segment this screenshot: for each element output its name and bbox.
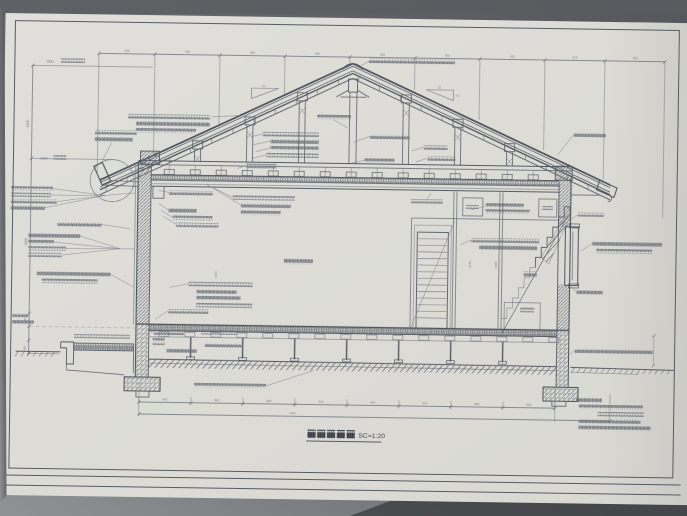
svg-text:1920: 1920: [214, 271, 218, 278]
svg-text:910: 910: [510, 54, 515, 58]
svg-text:5151: 5151: [47, 60, 54, 64]
svg-text:910: 910: [422, 401, 427, 405]
svg-text:5460: 5460: [289, 411, 296, 415]
svg-text:4.5: 4.5: [455, 94, 459, 98]
svg-text:10: 10: [438, 85, 442, 89]
svg-text:910: 910: [318, 400, 323, 404]
svg-text:1919: 1919: [26, 120, 30, 127]
svg-text:450: 450: [23, 345, 27, 350]
svg-text:750: 750: [125, 49, 130, 53]
svg-text:910: 910: [370, 400, 375, 404]
svg-text:910: 910: [214, 398, 219, 402]
svg-text:910: 910: [445, 53, 450, 57]
svg-text:910: 910: [315, 52, 320, 56]
svg-text:1500: 1500: [24, 238, 28, 245]
svg-text:10: 10: [262, 84, 266, 88]
svg-text:SC=1:20: SC=1:20: [358, 433, 385, 440]
svg-text:910: 910: [162, 397, 167, 401]
svg-text:910: 910: [474, 402, 479, 406]
svg-text:910: 910: [572, 55, 577, 59]
svg-text:910: 910: [526, 403, 531, 407]
svg-text:2478: 2478: [468, 261, 472, 268]
svg-text:910: 910: [250, 51, 255, 55]
svg-text:750: 750: [632, 56, 637, 60]
svg-text:910: 910: [266, 399, 271, 403]
svg-text:910: 910: [185, 50, 190, 54]
svg-text:910: 910: [380, 53, 385, 57]
svg-text:2400: 2400: [494, 261, 498, 268]
